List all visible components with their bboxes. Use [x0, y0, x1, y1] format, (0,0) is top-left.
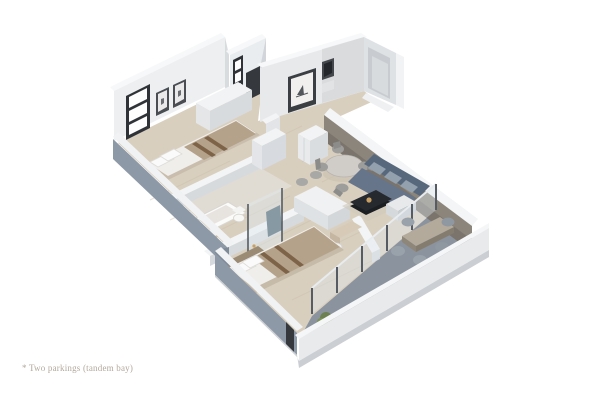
apartment-3d-floorplan: [0, 0, 600, 400]
outdoor-chair: [391, 246, 405, 256]
gold-fixture: [252, 244, 255, 247]
outdoor-chair: [442, 218, 455, 227]
porch-outer-band: [396, 53, 404, 109]
toilet-bowl: [234, 214, 245, 222]
outdoor-chair: [402, 218, 415, 227]
bar-stool: [310, 171, 322, 179]
bar-stool: [296, 178, 308, 186]
floorplan-render-page: * Two parkings (tandem bay): [0, 0, 600, 400]
dining-chair-back: [315, 158, 321, 170]
decor-bowl: [366, 197, 371, 202]
parking-footnote: * Two parkings (tandem bay): [22, 363, 133, 373]
